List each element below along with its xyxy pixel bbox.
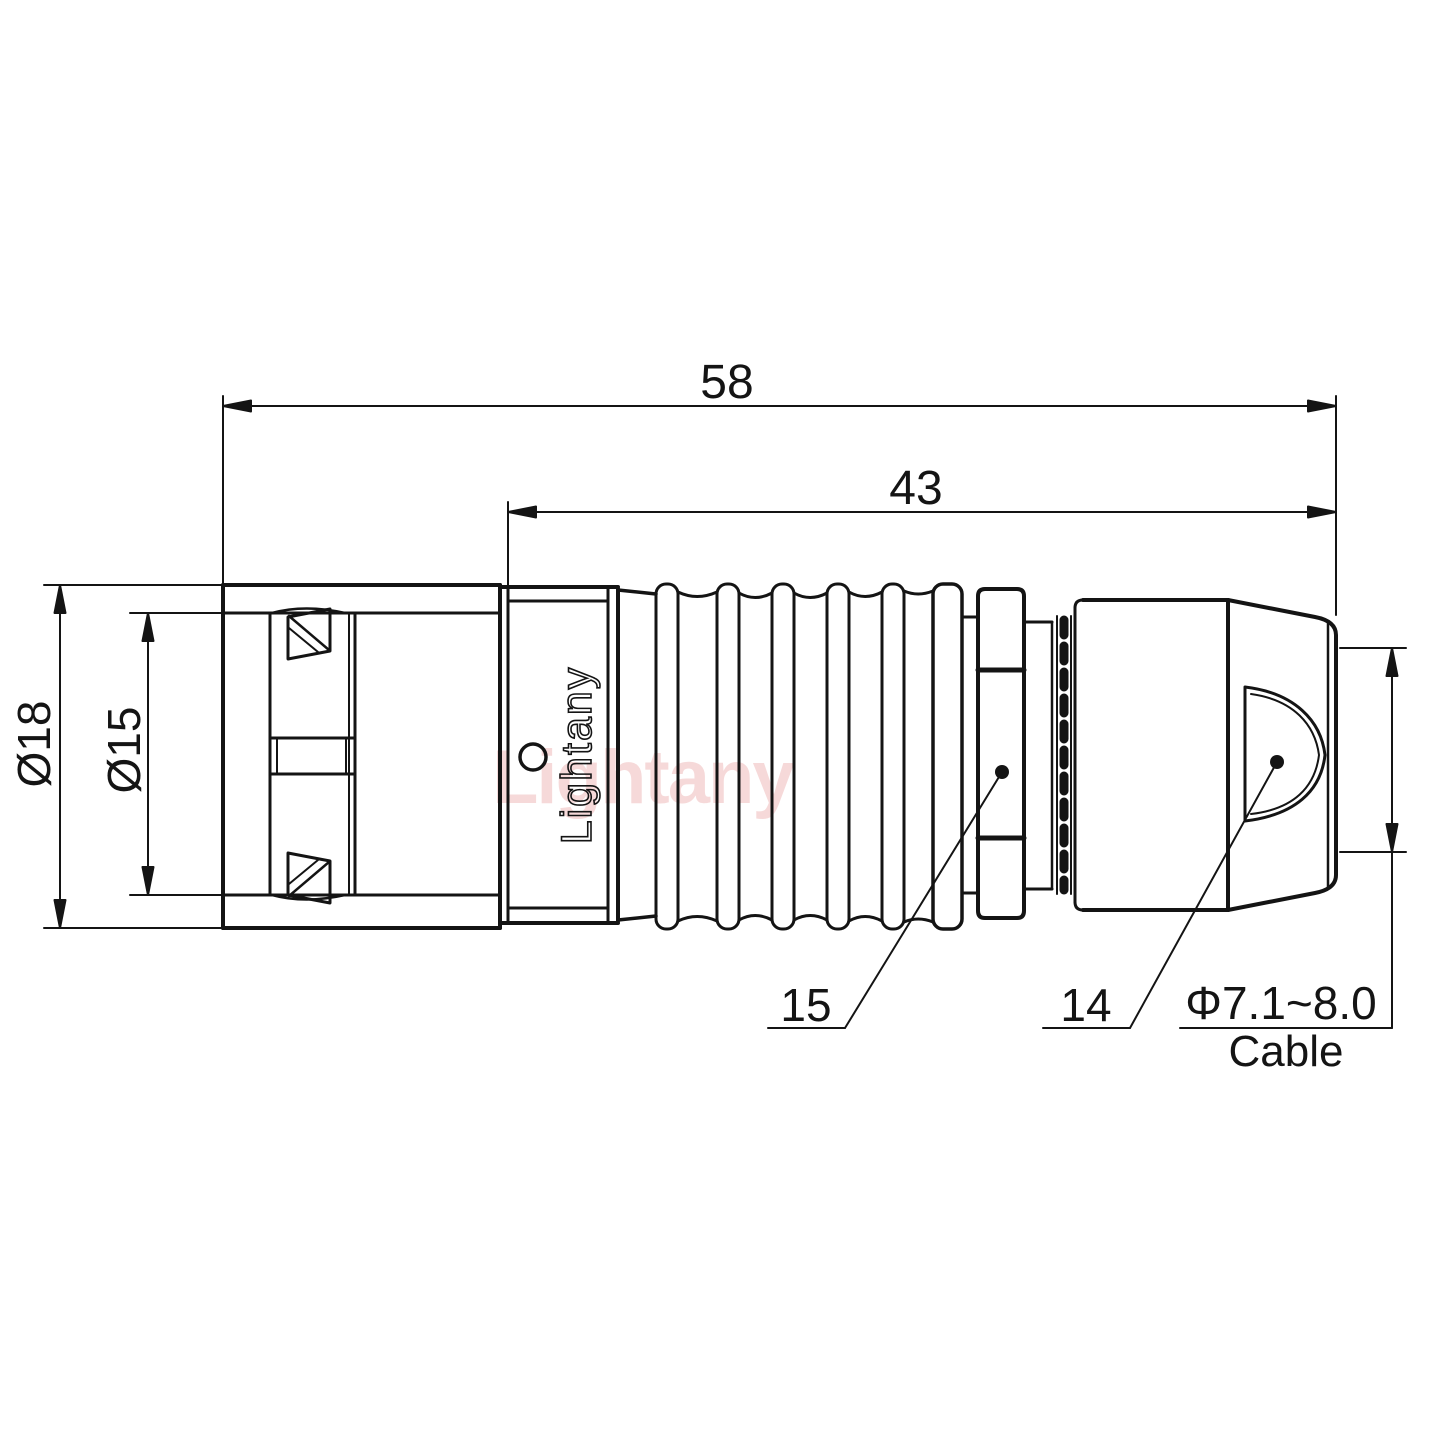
cable-opening-inner xyxy=(1251,694,1319,814)
dim-43-label: 43 xyxy=(889,462,942,515)
crimp-ring xyxy=(1057,616,1071,894)
dim-overall-length xyxy=(223,396,1336,615)
watermark-text: Lightany xyxy=(492,735,794,820)
latch-key-top xyxy=(288,609,330,659)
strain-relief-cone xyxy=(1228,600,1336,910)
connector-technical-drawing-page: Lightany xyxy=(0,0,1440,1440)
backshell xyxy=(1075,600,1228,910)
groove-window xyxy=(270,738,355,774)
technical-drawing-canvas: Lightany xyxy=(0,0,1440,1440)
cable-opening-outer xyxy=(1245,687,1325,821)
callout-14-label: 14 xyxy=(1060,979,1111,1031)
dim-d18-label: Ø18 xyxy=(8,701,60,788)
brand-engraving: Lightany xyxy=(553,666,601,845)
dim-58-label: 58 xyxy=(700,356,753,409)
cable-word-label: Cable xyxy=(1229,1027,1344,1076)
callout-15-label: 15 xyxy=(780,979,831,1031)
front-shell xyxy=(223,585,500,928)
dim-d15-label: Ø15 xyxy=(98,707,150,794)
nut-collar xyxy=(1024,622,1052,889)
coupling-nut xyxy=(978,589,1024,918)
cable-range-label: Φ7.1~8.0 xyxy=(1185,977,1376,1029)
